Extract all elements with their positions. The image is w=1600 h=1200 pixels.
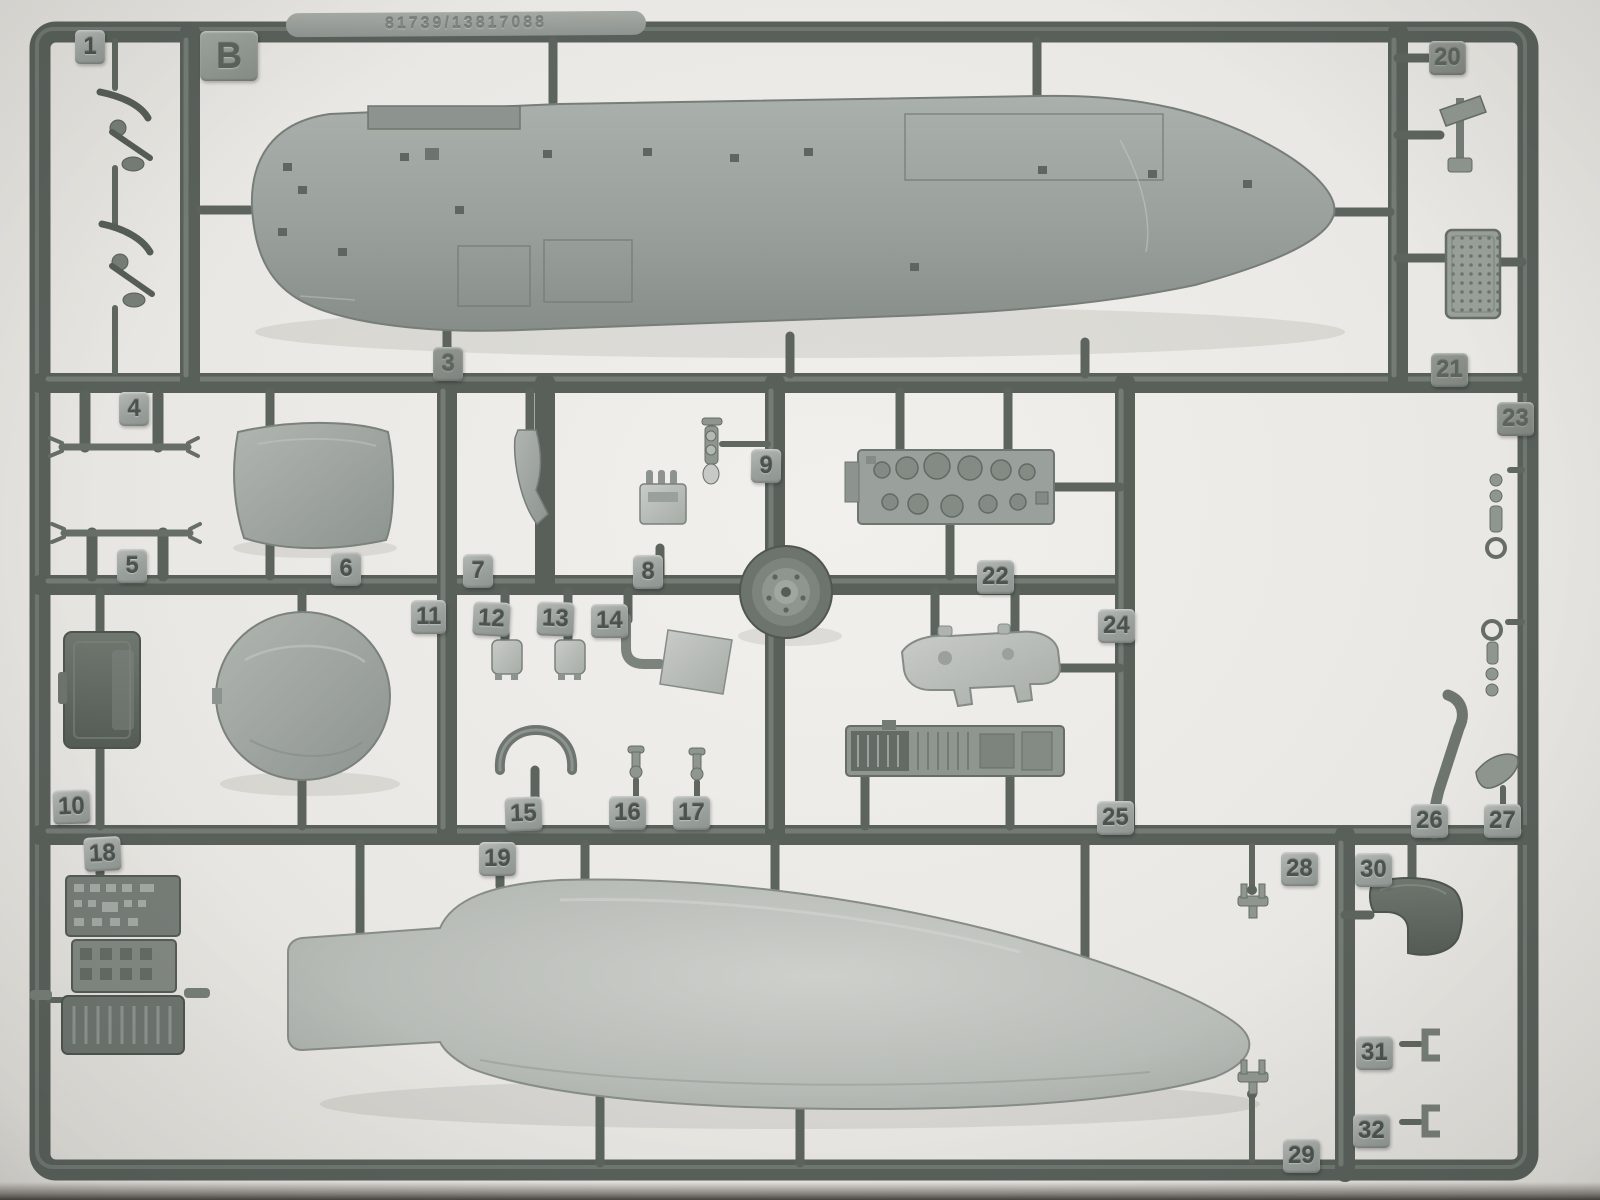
part-tag-13: 13	[536, 601, 574, 636]
photo-bottom-edge	[0, 1182, 1600, 1200]
sprue-artwork	[0, 0, 1600, 1200]
part-grille-block	[846, 720, 1064, 776]
part-tag-20: 20	[1429, 41, 1466, 75]
part-tag-7: 7	[463, 554, 493, 588]
part-radiator	[1446, 230, 1500, 318]
part-tag-22: 22	[977, 560, 1014, 594]
part-tag-1: 1	[75, 30, 105, 64]
part-tag-30: 30	[1355, 853, 1392, 887]
part-tag-12: 12	[472, 601, 510, 637]
part-tag-6: 6	[331, 552, 361, 586]
part-tag-8: 8	[633, 555, 663, 589]
part-tag-31: 31	[1356, 1036, 1393, 1070]
part-small-brackets	[1238, 884, 1268, 1094]
part-wing	[288, 879, 1249, 1109]
sprue-letter-tag: B	[200, 31, 258, 81]
part-tag-14: 14	[591, 604, 628, 638]
part-tag-5: 5	[117, 549, 147, 583]
part-fittings	[628, 746, 705, 780]
part-tag-9: 9	[751, 449, 782, 484]
part-instrument-stack	[30, 876, 210, 1054]
part-tag-16: 16	[609, 796, 646, 830]
part-wheel	[740, 546, 832, 638]
part-tag-26: 26	[1411, 804, 1448, 838]
part-tag-4: 4	[119, 392, 149, 426]
part-c-clips	[1425, 1032, 1440, 1134]
part-tag-15: 15	[504, 796, 542, 831]
part-seat-back	[234, 423, 393, 548]
part-dial-panel	[845, 450, 1054, 524]
part-tag-21: 21	[1431, 353, 1468, 387]
part-tag-28: 28	[1281, 852, 1318, 886]
part-tag-29: 29	[1283, 1139, 1320, 1173]
part-box	[58, 632, 140, 748]
mold-text: 81739/13817088	[286, 11, 646, 38]
part-tag-19: 19	[479, 842, 516, 876]
part-pin-box	[640, 470, 686, 524]
part-tag-17: 17	[673, 796, 710, 830]
part-rods	[50, 438, 200, 542]
part-seat-pan	[212, 612, 390, 780]
part-tag-18: 18	[83, 836, 121, 872]
part-tag-24: 24	[1098, 609, 1135, 643]
part-tube-plate	[626, 618, 732, 694]
part-tag-23: 23	[1497, 402, 1534, 436]
part-chain-links	[1483, 474, 1505, 696]
part-tag-32: 32	[1353, 1114, 1390, 1148]
part-tag-11: 11	[411, 600, 446, 634]
part-engine	[902, 624, 1060, 706]
part-tag-27: 27	[1484, 804, 1521, 838]
part-linkage	[702, 418, 722, 484]
part-bracket	[1440, 96, 1486, 172]
part-handlebar	[500, 730, 572, 770]
part-tag-10: 10	[52, 789, 90, 824]
part-deck	[252, 96, 1335, 331]
part-cups	[492, 640, 585, 680]
part-tag-3: 3	[433, 347, 463, 381]
sprue-photo: 81739/13817088 1 B 3 4 5 6 7 8 9 10 11 1…	[0, 0, 1600, 1200]
part-levers	[100, 92, 152, 307]
part-tag-25: 25	[1097, 801, 1134, 835]
part-cowl	[1370, 878, 1462, 955]
part-blade	[1476, 754, 1518, 788]
